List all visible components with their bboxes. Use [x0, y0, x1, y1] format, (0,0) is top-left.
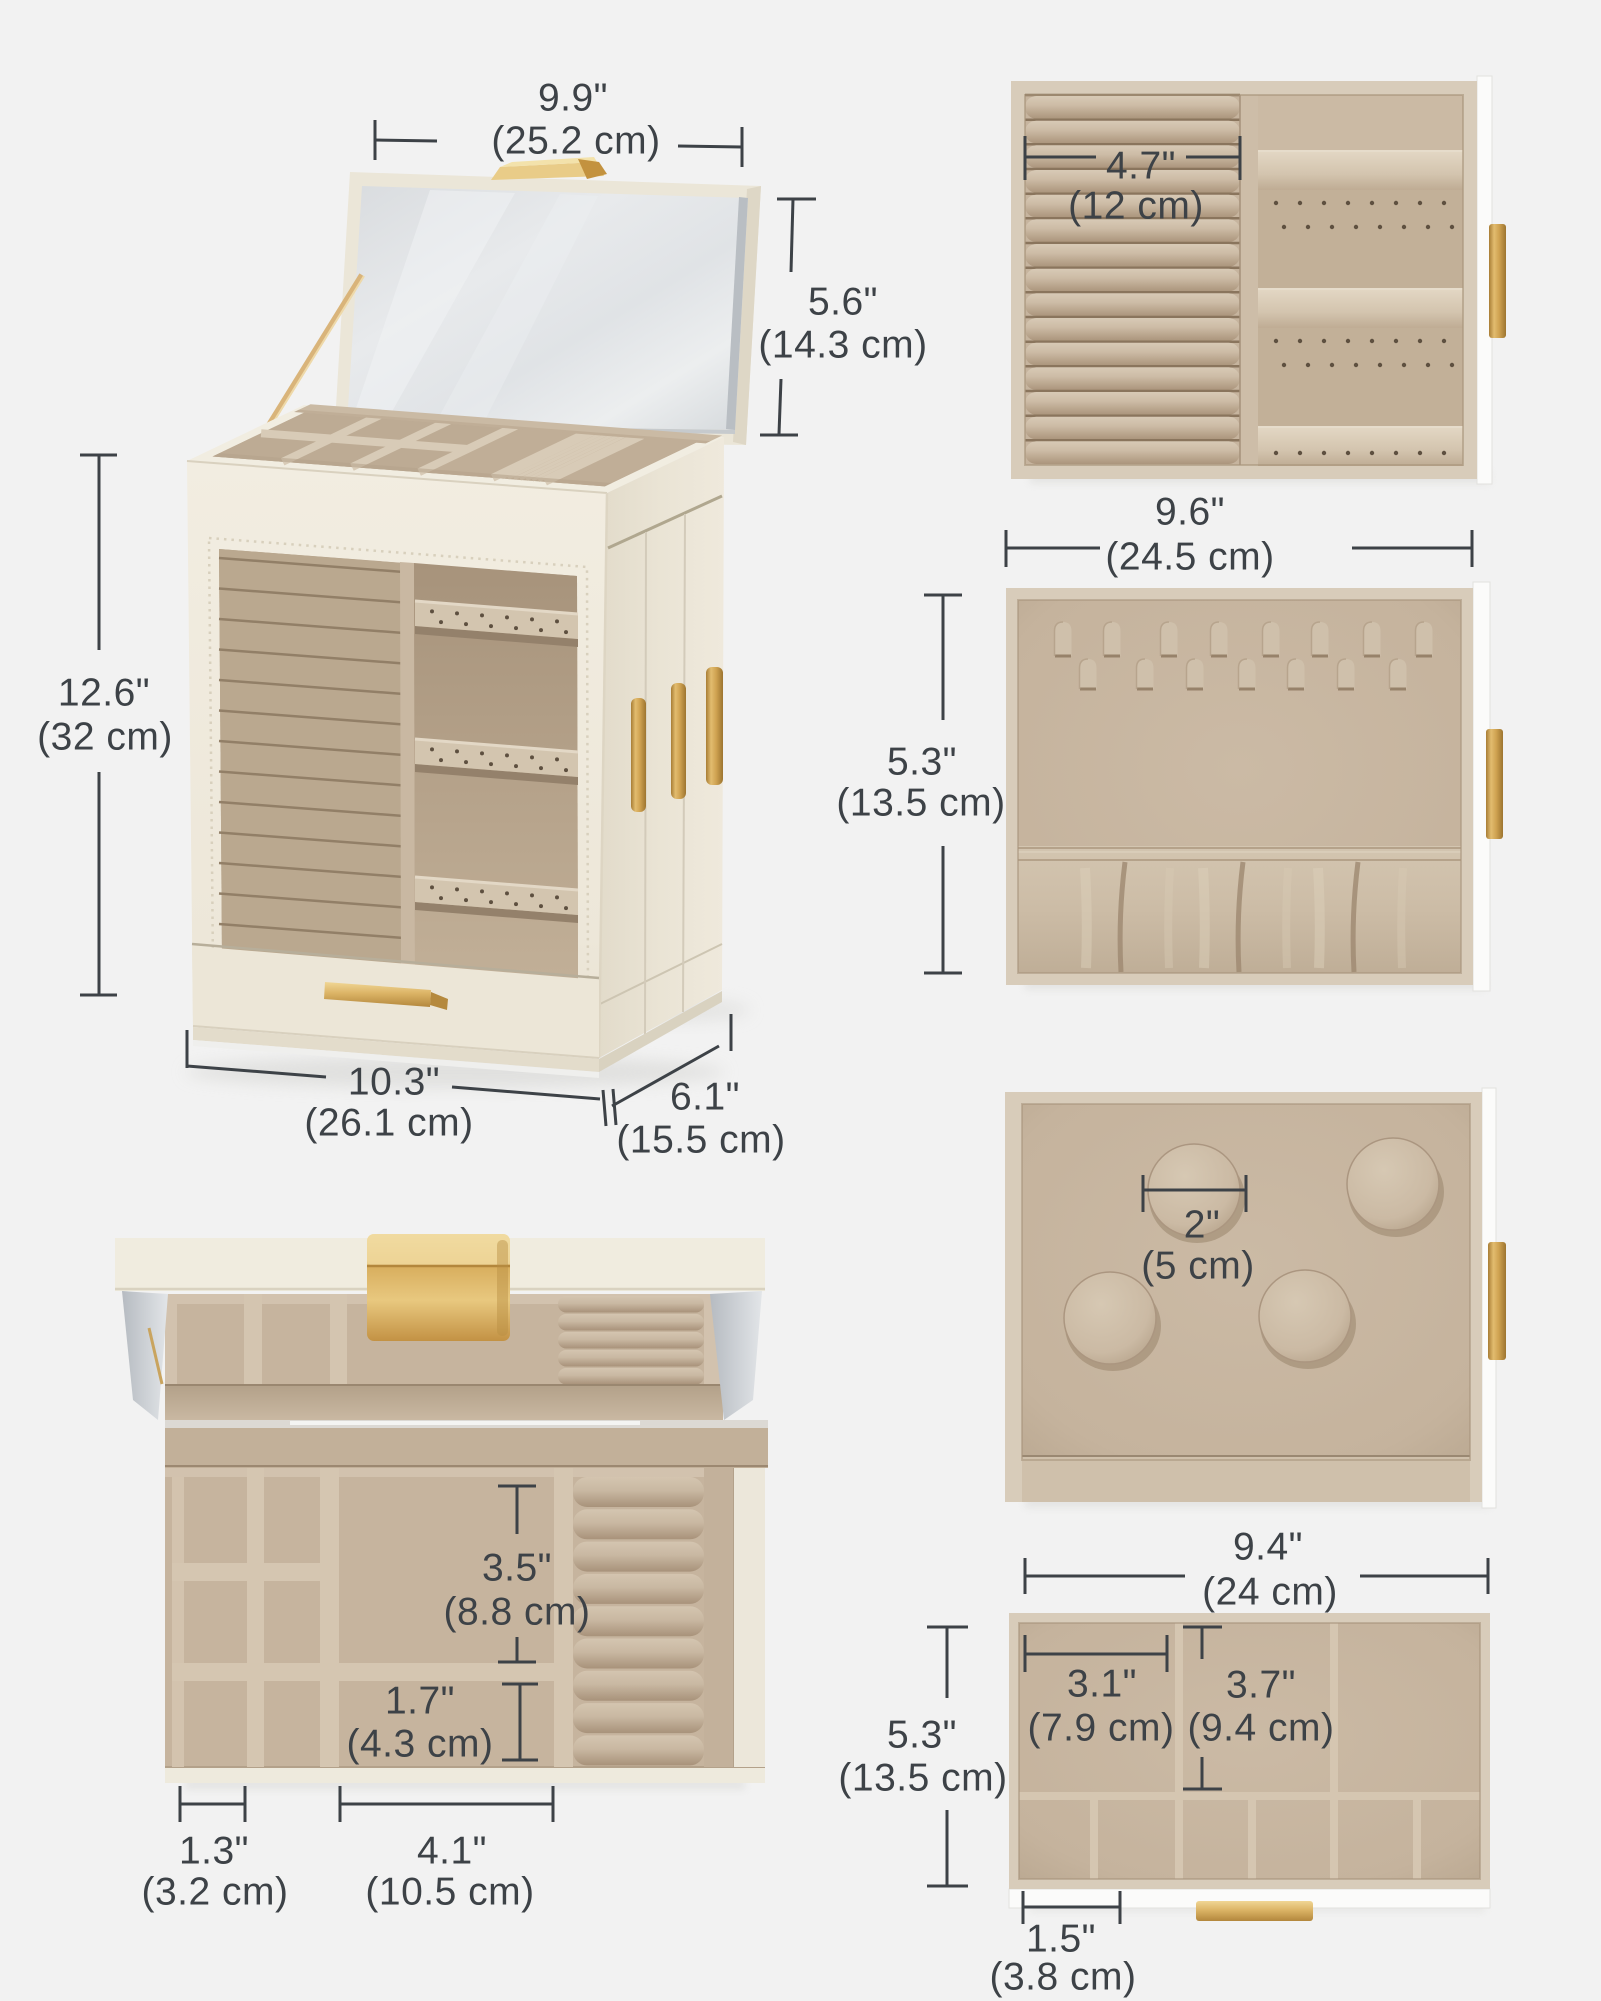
svg-text:(5 cm): (5 cm): [1141, 1245, 1255, 1288]
svg-text:5.3": 5.3": [887, 1714, 957, 1757]
svg-text:(9.4 cm): (9.4 cm): [1187, 1707, 1334, 1750]
svg-text:9.9": 9.9": [538, 77, 608, 120]
svg-text:3.5": 3.5": [482, 1547, 552, 1590]
svg-text:12.6": 12.6": [58, 672, 150, 715]
svg-text:(3.8 cm): (3.8 cm): [989, 1956, 1136, 1999]
svg-text:10.3": 10.3": [348, 1061, 440, 1104]
svg-text:(14.3 cm): (14.3 cm): [758, 324, 927, 367]
svg-text:(10.5 cm): (10.5 cm): [365, 1871, 534, 1914]
svg-text:(12 cm): (12 cm): [1068, 185, 1204, 228]
svg-text:(15.5 cm): (15.5 cm): [616, 1119, 785, 1162]
svg-text:4.1": 4.1": [417, 1830, 487, 1873]
svg-text:2": 2": [1184, 1204, 1221, 1247]
svg-text:4.7": 4.7": [1106, 145, 1176, 188]
svg-text:(24 cm): (24 cm): [1202, 1571, 1338, 1614]
svg-text:(8.8 cm): (8.8 cm): [443, 1591, 590, 1634]
svg-text:5.6": 5.6": [808, 281, 878, 324]
svg-text:(26.1 cm): (26.1 cm): [304, 1102, 473, 1145]
svg-text:(7.9 cm): (7.9 cm): [1027, 1707, 1174, 1750]
svg-text:9.6": 9.6": [1155, 491, 1225, 534]
svg-text:(3.2 cm): (3.2 cm): [141, 1871, 288, 1914]
svg-text:3.1": 3.1": [1067, 1663, 1137, 1706]
svg-text:(25.2 cm): (25.2 cm): [491, 120, 660, 163]
svg-text:3.7": 3.7": [1226, 1664, 1296, 1707]
svg-text:(32 cm): (32 cm): [37, 716, 173, 759]
svg-text:1.7": 1.7": [385, 1680, 455, 1723]
svg-text:5.3": 5.3": [887, 741, 957, 784]
svg-text:1.5": 1.5": [1026, 1918, 1096, 1961]
svg-text:(13.5 cm): (13.5 cm): [836, 782, 1005, 825]
svg-text:9.4": 9.4": [1233, 1526, 1303, 1569]
svg-text:(24.5 cm): (24.5 cm): [1105, 536, 1274, 579]
svg-text:(13.5 cm): (13.5 cm): [838, 1757, 1007, 1800]
svg-text:(4.3 cm): (4.3 cm): [346, 1723, 493, 1766]
svg-text:6.1": 6.1": [670, 1076, 740, 1119]
svg-text:1.3": 1.3": [179, 1830, 249, 1873]
